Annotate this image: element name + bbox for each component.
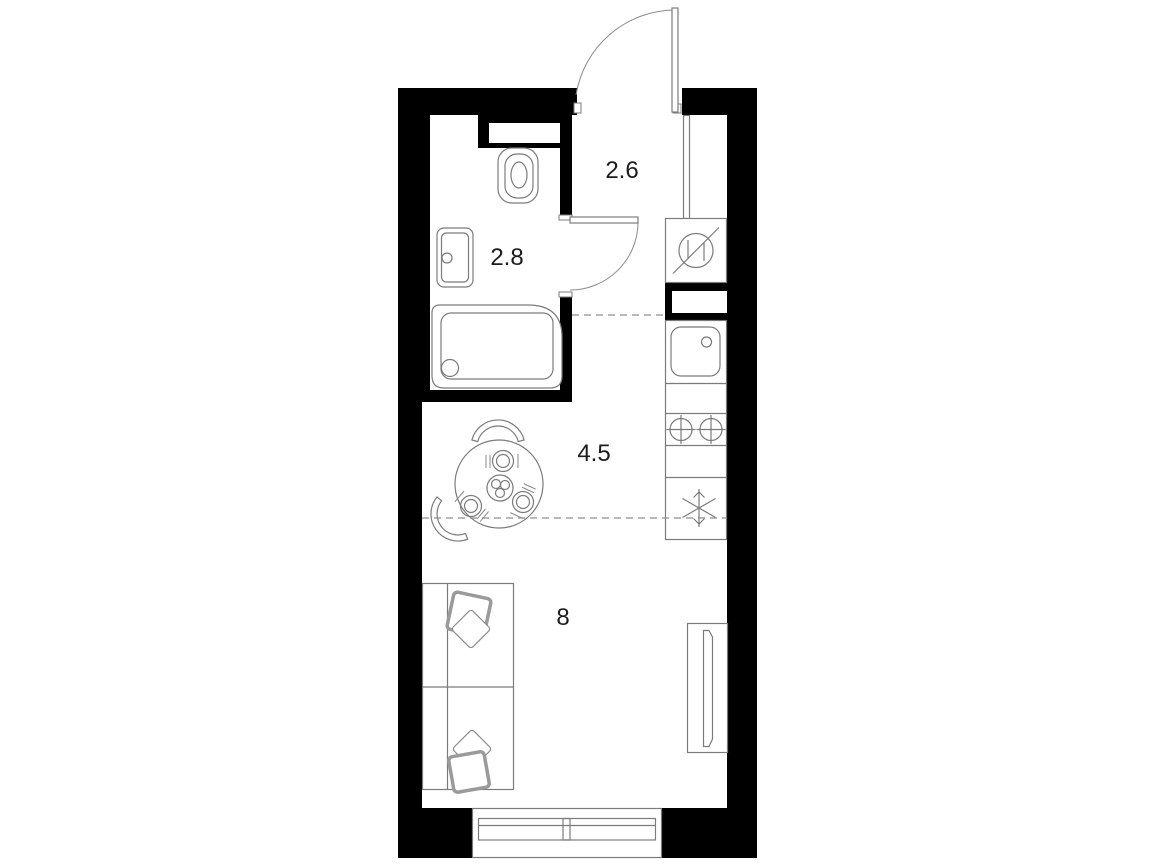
wall-top-right (682, 88, 757, 115)
wall-right (727, 115, 757, 858)
bathroom-door (570, 217, 638, 290)
wall-bottom-right (662, 808, 757, 858)
ventilation-shaft-inset (672, 291, 727, 313)
entrance-door-swing-arc (576, 10, 675, 95)
chair (472, 420, 524, 442)
hallway-partition (684, 116, 690, 219)
bathroom-jamb-bottom (559, 292, 572, 297)
room-label-kitchen: 4.5 (577, 440, 610, 467)
pillow (448, 751, 490, 793)
sofa-bed (423, 584, 514, 793)
dining-table (431, 420, 543, 541)
window (472, 808, 662, 858)
room-label-bathroom: 2.8 (490, 244, 523, 271)
bathroom-sink (437, 228, 473, 287)
washing-machine (666, 219, 727, 283)
entrance-door-leaf (672, 8, 678, 112)
wall-bathroom-bottom (398, 390, 572, 402)
tv-console (688, 624, 728, 753)
bathroom-door-leaf (570, 217, 638, 223)
tv-screen (704, 631, 713, 747)
wall-left-upper (398, 88, 430, 402)
entrance-door (576, 8, 678, 112)
shower-tray (432, 305, 562, 388)
toilet (498, 148, 538, 203)
entrance-jamb-left (574, 103, 581, 113)
floor-plan-canvas: 2.6 2.8 4.5 8 (0, 0, 1150, 867)
toilet-niche-inset (489, 123, 560, 143)
wall-bottom-left (398, 808, 472, 858)
kitchen-counter (666, 321, 727, 540)
room-label-entry-hall: 2.6 (605, 157, 638, 184)
wall-left-lower (398, 402, 422, 808)
room-label-living-room: 8 (556, 604, 569, 631)
bathroom-door-swing-arc (570, 222, 638, 290)
